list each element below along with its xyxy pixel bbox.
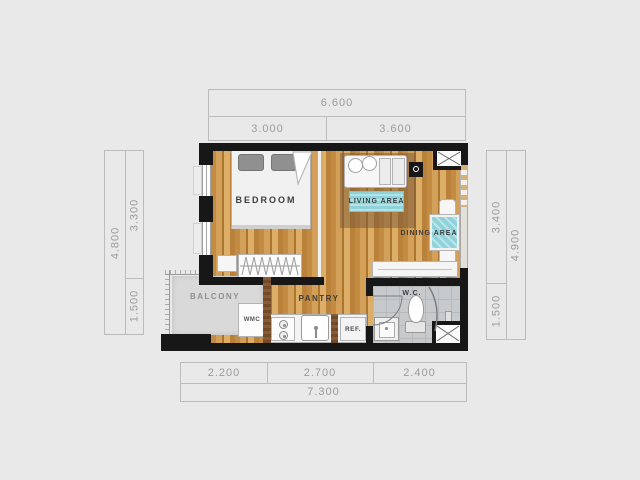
wall-wc-top <box>366 278 460 286</box>
dim-top-seg-2: 3.600 <box>326 116 465 141</box>
drain-dot <box>314 326 318 330</box>
dim-left-seg-1: 3.300 <box>125 151 143 278</box>
shaft-top <box>437 151 461 166</box>
wardrobe <box>238 254 302 278</box>
dim-right-seg-1-text: 3.400 <box>491 201 503 234</box>
stove <box>271 317 295 341</box>
sofa-seat <box>379 158 391 185</box>
balcony-label: BALCONY <box>178 290 252 302</box>
wall-balcony-pantry <box>263 277 271 343</box>
dim-bottom-seg-3: 2.400 <box>373 363 466 383</box>
dim-left-seg-1-text: 3.300 <box>128 198 140 231</box>
dim-bottom-total: 7.300 <box>181 383 466 401</box>
burner-icon <box>279 320 288 329</box>
sofa-seat <box>392 158 405 185</box>
tv-unit <box>409 162 423 177</box>
dim-bottom-seg-1: 2.200 <box>181 363 267 383</box>
dim-right-seg-2-text: 1.500 <box>491 295 503 328</box>
wall-balcony-bottom <box>161 334 211 351</box>
pantry-label: PANTRY <box>287 292 351 304</box>
dimension-table-right: 3.400 1.500 4.900 <box>486 150 526 340</box>
ref-label: REF. <box>341 318 365 340</box>
wall-wc-left-stub <box>366 326 373 343</box>
dimension-table-top: 6.600 3.000 3.600 <box>208 89 466 141</box>
bed-foot <box>232 225 310 229</box>
dim-right-total-text: 4.900 <box>510 229 522 262</box>
dim-top-total: 6.600 <box>209 90 465 116</box>
pillow <box>238 154 264 171</box>
wc-basin <box>379 322 395 338</box>
dim-right-seg-1: 3.400 <box>487 151 506 283</box>
wall-right-light <box>460 207 468 268</box>
kitchen-sink <box>301 315 329 341</box>
balcony-railing-left <box>165 270 170 335</box>
floor-plan-canvas: 6.600 3.000 3.600 2.200 2.700 2.400 7.30… <box>0 0 640 480</box>
toilet-bowl <box>408 295 424 323</box>
wall-top <box>203 143 468 151</box>
dim-top-seg-1: 3.000 <box>209 116 326 141</box>
wmc-label: WMC <box>239 304 265 336</box>
shaft-bottom-frame <box>432 321 460 343</box>
bedroom-window <box>202 222 211 255</box>
wc-sink <box>374 317 399 341</box>
drain-dot <box>385 327 388 330</box>
counter-line <box>378 269 452 270</box>
vanity-counter <box>372 261 458 277</box>
pillow <box>271 154 297 171</box>
bedroom-window <box>202 165 211 196</box>
wall-bottom <box>203 343 468 351</box>
speaker-icon <box>413 166 419 172</box>
shaft-bottom <box>436 325 460 343</box>
living-area-label: LIVING AREA <box>345 196 408 206</box>
dim-right-total: 4.900 <box>506 151 525 339</box>
bedroom-partition <box>317 151 322 277</box>
wall-right-upper <box>460 143 468 165</box>
refrigerator: REF. <box>340 317 366 341</box>
burner-dot <box>283 324 286 327</box>
bedroom-label: BEDROOM <box>221 193 311 206</box>
dim-left-seg-2-text: 1.500 <box>128 290 140 323</box>
sofa-cushion <box>348 158 363 173</box>
window-sill <box>193 166 202 195</box>
wall-wc-left-stub <box>366 286 373 296</box>
window-sill <box>193 223 202 254</box>
dim-left-total: 4.800 <box>105 151 125 334</box>
dining-area-label: DINING AREA <box>397 228 461 238</box>
washing-machine: WMC <box>238 303 266 337</box>
dim-left-seg-2: 1.500 <box>125 278 143 334</box>
wall-right-lower <box>460 268 468 351</box>
dim-bottom-seg-2: 2.700 <box>267 363 373 383</box>
sofa-cushion <box>362 156 377 171</box>
dimension-table-bottom: 2.200 2.700 2.400 7.300 <box>180 362 467 402</box>
wall-left-pier <box>199 143 213 165</box>
bedside-cabinet <box>217 255 237 272</box>
dim-left-total-text: 4.800 <box>109 226 121 259</box>
entrance-door-opening <box>460 165 468 207</box>
burner-dot <box>283 335 286 338</box>
faucet-icon <box>315 330 317 338</box>
dim-right-seg-2: 1.500 <box>487 283 506 339</box>
dimension-table-left: 4.800 3.300 1.500 <box>104 150 144 335</box>
shaft-top-frame <box>433 151 461 170</box>
burner-icon <box>279 331 288 340</box>
counter-wall-stub <box>331 314 338 343</box>
wall-left-pier <box>199 196 213 222</box>
